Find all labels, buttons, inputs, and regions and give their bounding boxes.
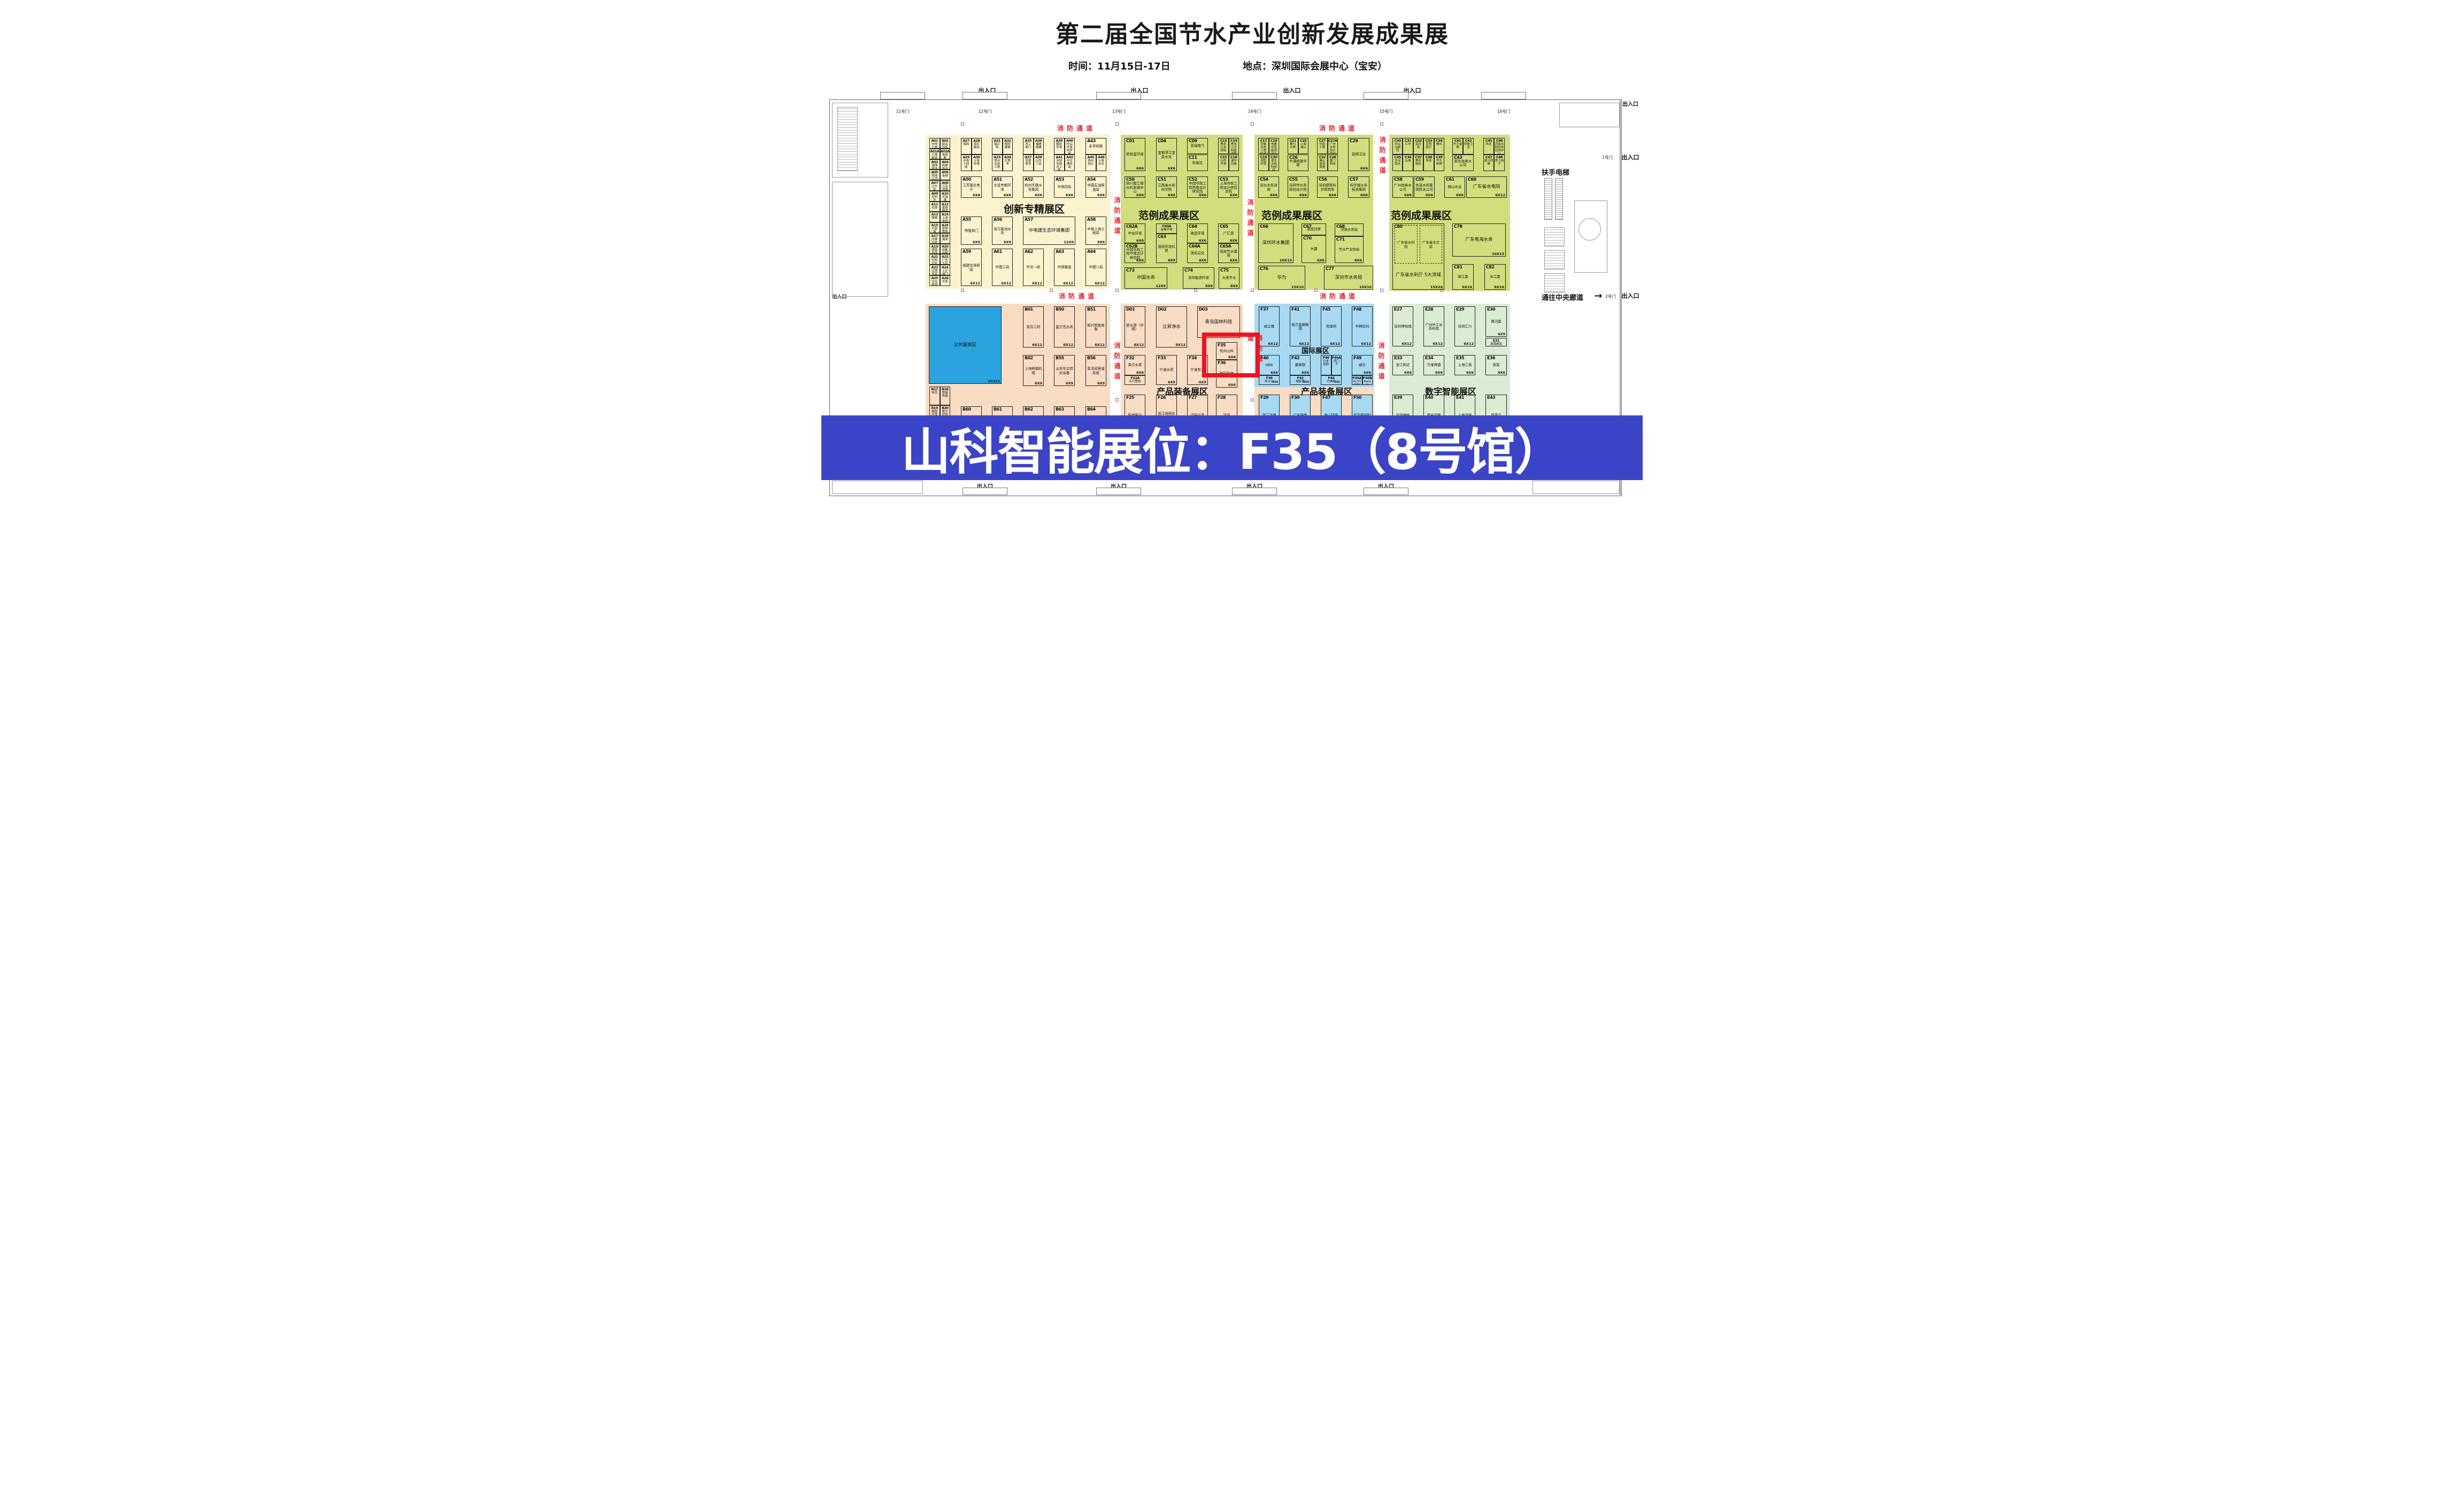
booth-id: E30 [1487, 307, 1495, 312]
booth-id: B56 [1087, 356, 1096, 361]
booth-name: 大连宇都环境 [993, 183, 1012, 191]
booth-name: 瀚源 [941, 238, 949, 241]
booth-A05: A05珠海江河 [929, 169, 940, 180]
booth-C51: C51江西省水利科学院6X6 [1156, 176, 1177, 198]
booth-name: 中铁上海工程局 [1087, 227, 1105, 235]
booth-name: 江苏地质 [941, 185, 949, 191]
booth-id: F37 [1260, 307, 1268, 312]
booth-size: 6X6 [1317, 258, 1325, 263]
booth-size: 6X12 [1361, 342, 1371, 346]
booth-name: 百特医疗 [1424, 143, 1433, 149]
booth-id: C36 [1405, 156, 1411, 159]
booth-id: A54 [1087, 177, 1096, 182]
booth-size: 6X6 [1136, 370, 1144, 375]
booth-name: 太钢宝武水务 [930, 269, 939, 275]
booth-id: B62 [1025, 407, 1033, 412]
booth-C60: C60广东省水电院6X12 [1466, 176, 1507, 198]
fire-lane-label: 消防通道 [1113, 197, 1122, 246]
booth-id: C17 [1260, 139, 1267, 143]
booth-A23: A23太钢宝武水务 [929, 265, 940, 275]
booth-name: 日本昭和 [1322, 360, 1330, 366]
door-vestibule [880, 92, 925, 99]
booth-id: A46 [1098, 156, 1105, 159]
booth-name: 电建中南勘测设计研究院 [1269, 143, 1278, 154]
booth-id: C70 [1303, 236, 1312, 241]
booth-name: 深圳环水集团 [1260, 242, 1292, 246]
booth-name: 科达 [1484, 143, 1493, 146]
booth-C53: C53上海市政工程设计研究总院6X6 [1218, 176, 1239, 198]
booth-A64: A64中建八局6X12 [1085, 249, 1106, 286]
booth-name: 深圳博铭维 [1393, 325, 1412, 329]
booth-A61: A61中建三局6X12 [992, 249, 1013, 286]
booth-name: 高效节水灌溉 [1219, 250, 1238, 258]
booth-name: 中韩杜科 [1353, 325, 1372, 329]
booth-id: A64 [1087, 249, 1096, 254]
booth-size: 21X21 [988, 379, 1000, 383]
booth-name: 华为 [1260, 276, 1304, 280]
booth-name: 节水产业协会 [1336, 248, 1362, 252]
booth-id: A38 [1035, 156, 1042, 159]
booth-C46: C46河南水利科技应用中心 [1494, 138, 1505, 155]
booth-C21: C21都匀水表 [1288, 138, 1298, 154]
booth-id: C64 [1189, 224, 1197, 229]
booth-size: 6X9 [973, 240, 980, 244]
booth-size: 6X12 [1330, 342, 1340, 346]
booth-A51: A51大连宇都环境6X6 [992, 176, 1013, 198]
booth-name: 浙江联池水务 [993, 227, 1012, 235]
booth-C32: C32蓝月亮 [1413, 138, 1423, 155]
pillar-marker [1440, 289, 1443, 292]
booth-name: 水电七局 [930, 143, 939, 149]
booth-C22: C22佛山南海景隆 [1317, 155, 1328, 171]
booth-name: 高度创新 [1303, 228, 1325, 232]
booth-id: E35 [1456, 356, 1464, 361]
booth-name: 上海水业 [1097, 159, 1105, 166]
booth-size: 6X9 [1168, 380, 1175, 384]
booth-C31: C31汇中 [1403, 138, 1413, 155]
booth-A35: A35良工阀门 [1023, 138, 1034, 155]
booth-C58: C58广州自来水公司6X6 [1392, 176, 1413, 198]
booth-A39: A39鹏凯环境 [1054, 138, 1065, 155]
booth-name: 东莞水务集团供水公司 [1415, 183, 1434, 191]
booth-name: 四川都江堰水利发展中心 [1126, 182, 1144, 194]
booth-name: 碧水源（华南） [1126, 323, 1144, 331]
booth-C29: C29箭牌卫浴6X6 [1348, 138, 1369, 171]
booth-name: 广东省水利厅 5大流域 [1394, 274, 1443, 278]
pillar-marker [1194, 289, 1197, 292]
booth-A53: A53中铁四局6X6 [1054, 176, 1075, 198]
booth-id: C63A [1162, 225, 1171, 228]
booth-B02: B02上海熊猫机械6X9 [1023, 355, 1044, 386]
booth-id: B01 [1025, 307, 1033, 312]
pillar-marker [1251, 398, 1254, 402]
booth-C04: C04宝钢湛江宝武水务6X6 [1156, 138, 1177, 171]
booth-name: 湖北水电科研院 [1269, 159, 1278, 171]
booth-size: 6X12 [1095, 281, 1105, 285]
booth-id: B61 [994, 407, 1002, 412]
entrance-label: 出入口 [1283, 86, 1301, 95]
escalator [1544, 178, 1552, 220]
pillar-marker [1251, 289, 1254, 292]
booth-size: 6X6 [1035, 193, 1042, 197]
booth-C73: C73中国水务12X9 [1125, 267, 1167, 289]
booth-C67: C67高度创新 [1302, 223, 1326, 235]
booth-name: 广东省水科院 [1396, 241, 1416, 249]
booth-id: C09 [1189, 138, 1197, 144]
booth-C42: C42安彼卫浴 [1463, 138, 1474, 155]
booth-name: 中恩工程 [1318, 143, 1327, 149]
booth-size: 6X6 [1136, 166, 1144, 171]
booth-C74: C74深圳能源环保9X9 [1183, 267, 1214, 289]
booth-name: 衡阳建衡 [1003, 143, 1012, 149]
booth-id: C64A [1189, 244, 1200, 249]
booth-name: 格兰富朗格瑞 [1291, 323, 1310, 331]
booth-id: B19 [931, 406, 938, 410]
booth-A57: A57中电建生态环境集团12X9 [1023, 217, 1075, 245]
booth-cell: 广东省水科院 [1395, 225, 1418, 264]
booth-name: 中交一航 [1024, 266, 1043, 270]
booth-size: 6X6 [973, 193, 980, 197]
booth-size: 6X12 [1268, 342, 1278, 346]
gate-label: 1号门 [1602, 155, 1613, 160]
booth-size: 6X9 [1230, 284, 1238, 288]
booth-A15: A15开普瑞 [929, 222, 940, 233]
booth-id: C29 [1350, 138, 1358, 144]
booth-id: C81 [1454, 265, 1462, 270]
booth-A41: A41深圳市政总工程 [1054, 155, 1065, 171]
booth-id: A07 [931, 181, 938, 185]
booth-A14: A14上海金科 [940, 212, 951, 222]
booth-cell: 广东省水利厅 5大流域 [1392, 265, 1444, 285]
booth-id: F30 [1291, 395, 1299, 400]
booth-id: F25 [1126, 395, 1134, 400]
booth-id: A05 [931, 171, 938, 174]
booth-id: C34 [1436, 139, 1442, 143]
booth-id: F48 [1353, 307, 1361, 312]
booth-name: 汇锦能效 [930, 153, 939, 159]
booth-name: 上正阀门 [941, 269, 949, 275]
booth-id: C82 [1486, 265, 1495, 270]
booth-B51: B51钜兴智能装备6X12 [1085, 306, 1106, 348]
booth-id: C35 [1395, 156, 1401, 159]
booth-id: F34 [1189, 356, 1197, 361]
booth-C78: C78广东粤海水务10X15 [1452, 223, 1506, 257]
booth-name: 深圳建筑科学研究院 [1318, 183, 1337, 191]
booth-name: 上海市政工程设计研究总院 [1219, 182, 1238, 194]
booth-id: E43 [1487, 395, 1495, 400]
booth-D01: D01碧水源（华南）6X12 [1125, 306, 1145, 348]
booth-C75: C75大禹节水6X9 [1219, 267, 1239, 289]
booth-A22: A22广东玉环 [940, 254, 951, 265]
booth-size: 6X6 [1230, 258, 1237, 263]
booth-C16: C16淏华玛格 [1229, 155, 1239, 171]
booth-E36: E36百度6X6 [1485, 355, 1507, 375]
fire-lane-label: 消防通道 [1057, 123, 1096, 133]
booth-name: 韶关冶炼 [941, 143, 949, 149]
booth-name: 登福机械 [941, 391, 949, 398]
booth-C82: C82长江委6X10 [1484, 264, 1506, 290]
booth-F46: F46日本昭和 [1321, 355, 1331, 375]
booth-E34: E34万维博通6X6 [1423, 355, 1444, 375]
booth-id: C55 [1289, 177, 1298, 182]
booth-name: 淏华玛格 [1229, 159, 1238, 166]
booth-id: A16 [942, 223, 949, 227]
stair-block [1544, 250, 1565, 269]
booth-id: C54 [1260, 177, 1268, 182]
booth-name: 山东三岳 [1034, 159, 1043, 166]
booth-A59: A59福建龙净新陆6X12 [961, 249, 982, 286]
booth-name: 文拓 [941, 280, 949, 283]
zone-label: 范例成果展区 [1391, 208, 1452, 222]
fire-lane-label: 消防通道 [1320, 291, 1358, 300]
booth-name: 白云山制药 [1393, 143, 1402, 152]
booth-name: 上海熊猫机械 [1024, 367, 1043, 375]
booth-name: 西门子 [1332, 360, 1341, 366]
corridor-label: 通往中央廊道 [1542, 292, 1583, 302]
booth-id: E34 [1425, 356, 1433, 361]
booth-F33: F33宁波水表6X9 [1156, 355, 1177, 385]
booth-id: B64 [1087, 407, 1096, 412]
booth-size: 6X6 [1136, 238, 1144, 243]
stair-block [1544, 227, 1565, 246]
booth-name: 淄博华泽 [930, 164, 939, 169]
booth-id: C58 [1394, 177, 1403, 182]
booth-name: 郑州水务工程 [993, 159, 1002, 169]
booth-name: 大疆 [1303, 248, 1325, 252]
booth-C71: C71节水产业协会6X6 [1335, 236, 1364, 263]
booth-id: C65A [1220, 244, 1231, 249]
booth-id: C63 [1158, 234, 1166, 240]
booth-A46: A46上海水业 [1096, 155, 1107, 171]
fire-lane-label: 消防通道 [1059, 291, 1097, 300]
booth-id: B50 [1056, 307, 1064, 312]
booth-size: 6X9 [1035, 381, 1042, 385]
booth-A13: A13睿威 [929, 212, 940, 222]
pillar-marker [961, 122, 964, 126]
booth-size: 3X6 [1272, 380, 1278, 384]
booth-C52: C52中国市政工程西南设计研究院6X6 [1187, 176, 1208, 198]
booth-name: 百福电气 [1188, 144, 1207, 149]
booth-size: 6X6 [1136, 193, 1144, 197]
booth-F46A: F46A西门子 [1331, 355, 1342, 375]
booth-name: 杭州天健水务集团 [1024, 183, 1043, 191]
booth-C61: C61佛山水业6X6 [1444, 176, 1465, 198]
booth-id: B55 [1056, 356, 1064, 361]
booth-name: 开平金牌 [1453, 143, 1462, 149]
booth-id: D02 [1158, 307, 1166, 312]
banner-text: 山科智能展位：F35（8号馆） [902, 412, 1563, 483]
booth-name: 广东玉环 [941, 259, 949, 265]
booth-name: 福建城建 [1034, 143, 1043, 149]
booth-size: 12X9 [1156, 284, 1166, 288]
booth-name: 亿惠丰 [1003, 159, 1012, 166]
booth-id: C46 [1496, 139, 1503, 143]
booth-C65: C65广汇源6X6 [1218, 223, 1239, 243]
booth-id: E27 [1394, 307, 1402, 312]
booth-size: 6X12 [970, 281, 980, 285]
booth-F43: F43施耐德3X6 [1290, 375, 1311, 385]
booth-name: 深水水务咨询 [1259, 183, 1278, 191]
booth-name: 深圳汇川 [1456, 325, 1474, 329]
booth-B56: B56圣戈班管道系统6X9 [1085, 355, 1106, 386]
booth-id: A04 [942, 160, 949, 164]
gate-label: 15号门 [1380, 109, 1393, 114]
booth-id: A21 [931, 255, 938, 259]
booth-name: 里奇管线 [941, 227, 949, 233]
booth-id: B20 [942, 406, 949, 410]
booth-size: 6X9 [1097, 381, 1105, 385]
booth-size: 6X6 [1136, 258, 1144, 263]
booth-C35: C35东深智水 [1392, 155, 1403, 171]
booth-A32: A32衡阳建衡 [1003, 138, 1013, 155]
booth-size: 6X9 [1004, 240, 1011, 244]
booth-name: 东深智水 [1393, 159, 1402, 166]
escalator-label: 扶手电梯 [1542, 167, 1569, 177]
booth-id: A02 [942, 139, 949, 143]
escalator [1555, 178, 1563, 220]
booth-name: 中信环境 [1126, 231, 1144, 236]
booth-size: 6X12 [1063, 343, 1073, 347]
zone-label: 范例成果展区 [1138, 208, 1199, 222]
door-vestibule [1232, 92, 1277, 99]
spiral-stair [1578, 218, 1601, 241]
booth-size: 6X6 [1404, 193, 1412, 197]
booth-F45A: F45AACTUATECH SPA [1352, 375, 1362, 385]
booth-name: 中山环保科学院 [1065, 143, 1074, 155]
gate-label: 2号门 [1605, 294, 1616, 299]
booth-id: A41 [1056, 156, 1062, 159]
booth-size: 3X6 [1334, 380, 1340, 384]
booth-id: C20 [1270, 156, 1277, 159]
booth-id: A57 [1025, 217, 1033, 222]
booth-size: 6X6 [1168, 193, 1175, 197]
booth-C14: C14黑龙江水利投资集团 [1229, 138, 1239, 154]
booth-C30: C30白云山制药 [1392, 138, 1403, 155]
booth-id: C14 [1230, 139, 1237, 143]
booth-C37: C37美亚股份 [1413, 155, 1423, 171]
booth-size: 6X6 [1004, 193, 1011, 197]
booth-id: A52 [1025, 177, 1033, 182]
booth-size: 6X6 [1426, 193, 1433, 197]
booth-id: E36 [1487, 356, 1495, 361]
booth-C45: C45科达 [1483, 138, 1494, 155]
booth-size: 6X6 [1360, 193, 1368, 197]
booth-id: A36 [1035, 139, 1042, 143]
booth-A07: A07立方米 [929, 180, 940, 191]
booth-size: 6X6 [1270, 193, 1277, 197]
booth-name: 广东省水文局 [1421, 241, 1441, 249]
booth-A38: A38山东三岳 [1034, 155, 1044, 171]
booth-id: B51 [1087, 307, 1096, 312]
booth-size: 6X6 [1299, 193, 1307, 197]
booth-size: 6X6 [1435, 370, 1443, 375]
booth-id: E31 [1493, 339, 1499, 343]
booth-size: 6X12 [1495, 193, 1505, 197]
booth-C62A: C62A中信环境6X6 [1125, 223, 1145, 243]
zone-label: 产品装备展区 [1157, 384, 1208, 397]
booth-A02: A02韶关冶炼 [940, 138, 951, 149]
booth-id: A32 [1004, 139, 1011, 143]
booth-size: 6X6 [1168, 166, 1175, 171]
booth-size: 6X12 [1032, 343, 1042, 347]
booth-size: 6X6 [1199, 258, 1206, 263]
booth-C33: C33百特医疗 [1423, 138, 1434, 155]
booth-id: F29 [1260, 395, 1268, 400]
booth-id: E28 [1425, 307, 1433, 312]
booth-C55: C55深圳市水务规划设计院6X6 [1288, 176, 1308, 198]
booth-id: A26 [942, 276, 949, 280]
booth-id: A09 [931, 192, 938, 196]
booth-name: 中国水务 [1126, 276, 1165, 281]
booth-name: 中国市政工程西南设计研究院 [1188, 182, 1207, 194]
booth-id: A51 [994, 177, 1002, 182]
booth-name: 中国石油管道局 [1087, 183, 1105, 191]
booth-name: 茂名石化 [1188, 251, 1207, 256]
booth-id: A53 [1056, 177, 1064, 182]
booth-id: A56 [994, 217, 1002, 222]
booth-id: C28 [1329, 156, 1336, 159]
booth-name: 广汇源 [1219, 231, 1238, 236]
booth-name: 百度 [1487, 364, 1506, 368]
booth-name: 永享铜管 [1087, 144, 1105, 149]
booth-F49: F49威乐6X6 [1352, 355, 1373, 375]
booth-id: A15 [931, 223, 938, 227]
booth-id: D03 [1199, 307, 1207, 312]
booth-name: 厦门四信 [1328, 159, 1337, 166]
booth-A58: A58中铁上海工程局9X9 [1085, 217, 1106, 245]
booth-name: 广州中工水务科技 [1424, 323, 1443, 331]
booth-A43: A43永享铜管 [1085, 138, 1106, 155]
booth-name: 水电十四局 [962, 159, 971, 169]
booth-id: C38 [1426, 156, 1432, 159]
booth-E35: E35上海三高6X6 [1454, 355, 1475, 375]
booth-id: C15 [1220, 156, 1227, 159]
pillar-marker [1115, 289, 1119, 292]
booth-name: 都匀水表 [1289, 143, 1297, 149]
booth-id: C42 [1465, 139, 1472, 143]
booth-id: A14 [942, 213, 949, 217]
booth-size: 6X6 [1228, 383, 1236, 387]
gate-label: 16号门 [1497, 109, 1511, 114]
booth-A28: A28南京磁谷 [972, 138, 982, 155]
booth-C09: C09百福电气 [1187, 138, 1208, 154]
booth-id: C31 [1405, 139, 1411, 143]
booth-name: 立方米 [930, 185, 939, 191]
booth-name: 瀚蓝环境 [1188, 231, 1207, 236]
booth-size: 10X15 [1280, 258, 1292, 263]
booth-name: 溢维环境 [1157, 228, 1176, 231]
door-vestibule [1364, 92, 1408, 99]
booth-id: C18 [1270, 139, 1277, 143]
booth-name: 上海三高 [1456, 364, 1474, 368]
booth-id: C65 [1220, 224, 1228, 229]
booth-E33: E33浙江和达6X6 [1392, 355, 1413, 375]
booth-id: F38 [1266, 376, 1273, 380]
booth-name: 宁波水表 [1157, 368, 1176, 373]
booth-size: 6X6 [1456, 193, 1464, 197]
booth-name: 蓝月亮 [1414, 143, 1422, 149]
booth-name: 深圳市水务规划设计院 [1289, 183, 1307, 191]
booth-size: 6X6 [1066, 193, 1073, 197]
booth-id: A31 [994, 139, 1000, 143]
booth-size: 9X9 [1097, 240, 1105, 244]
booth-id: F32 [1126, 356, 1134, 361]
booth-id: C60 [1468, 177, 1476, 182]
booth-name: 佛山水业 [1445, 186, 1464, 190]
booth-F44: F44丹佛斯3X6 [1321, 375, 1342, 385]
booth-C70: C70大疆6X6 [1302, 235, 1326, 263]
booth-A56: A56浙江联池水务6X9 [992, 217, 1013, 245]
